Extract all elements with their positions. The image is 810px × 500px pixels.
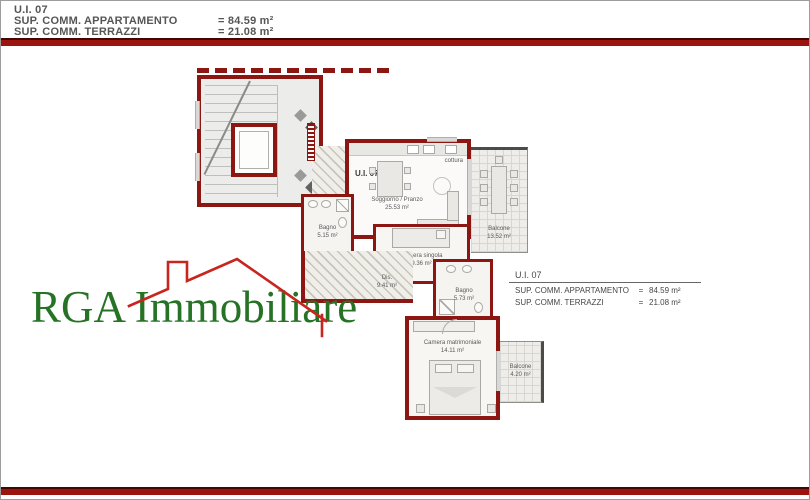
info-box: U.I. 07 SUP. COMM. APPARTAMENTO = 84.59 …: [509, 270, 701, 307]
elevator-car: [239, 131, 269, 169]
info-apartment-eq: =: [633, 286, 649, 295]
info-terraces-label: SUP. COMM. TERRAZZI: [515, 298, 633, 307]
chair: [510, 198, 518, 206]
nightstand: [416, 404, 425, 413]
window: [195, 153, 200, 181]
room-name: Balcone: [500, 364, 541, 372]
pillow: [457, 364, 474, 373]
room-name: Bagno: [304, 225, 351, 233]
radiator: [307, 123, 315, 161]
shower: [336, 199, 349, 212]
room-balcone-grande: Balcone 13.52 m²: [471, 147, 528, 253]
bidet: [321, 200, 331, 208]
roof-icon: [29, 249, 365, 345]
sink: [446, 265, 456, 273]
elevator: [231, 123, 277, 177]
room-area: 14.11 m²: [409, 348, 496, 356]
chair: [369, 183, 376, 190]
chair: [480, 170, 488, 178]
chair: [480, 184, 488, 192]
floorplan-sheet: U.I. 07 SUP. COMM. APPARTAMENTO = 84.59 …: [0, 0, 810, 500]
dining-table: [377, 161, 403, 197]
pillow: [436, 230, 446, 239]
info-box-unit: U.I. 07: [509, 270, 701, 283]
room-name: Balcone: [471, 226, 527, 234]
room-area: 9.41 m²: [363, 283, 411, 291]
room-area: 4.20 m²: [500, 372, 541, 380]
room-name: Camera matrimoniale: [409, 340, 496, 348]
nightstand: [487, 404, 496, 413]
patio-table: [491, 166, 507, 214]
sink: [308, 200, 318, 208]
direction-arrow-icon: [294, 109, 307, 122]
chair: [404, 167, 411, 174]
kitchen-sink: [407, 145, 419, 154]
info-apartment-value: 84.59 m²: [649, 286, 681, 295]
room-area: 13.52 m²: [471, 234, 527, 242]
info-terraces-value: 21.08 m²: [649, 298, 681, 307]
room-area: 25.53 m²: [349, 205, 445, 213]
agency-logo: RGA Immobiliare: [29, 249, 365, 345]
chair: [495, 156, 503, 164]
room-name: Bagno: [440, 288, 488, 296]
kitchen-appliance: [445, 145, 457, 154]
chair: [510, 184, 518, 192]
chair: [369, 167, 376, 174]
entrance-landing: [312, 146, 349, 200]
chair: [510, 170, 518, 178]
chair: [404, 183, 411, 190]
sofa: [447, 191, 459, 221]
blanket: [433, 387, 477, 398]
toilet: [474, 302, 483, 313]
dashed-wall: [197, 68, 395, 73]
window: [195, 101, 200, 129]
room-name: Soggiorno / Pranzo: [349, 197, 445, 205]
chair: [480, 198, 488, 206]
sink: [462, 265, 472, 273]
room-balcone-piccolo: Balcone 4.20 m²: [500, 341, 544, 403]
window: [427, 137, 457, 142]
direction-arrow-icon: [294, 169, 307, 182]
room-bagno-2: Bagno 5.73 m²: [433, 259, 493, 323]
pillow: [435, 364, 452, 373]
room-bagno-1: Bagno 5.15 m²: [301, 194, 354, 254]
room-area: 5.15 m²: [304, 233, 351, 241]
room-area: 5.73 m²: [440, 296, 488, 304]
info-apartment-label: SUP. COMM. APPARTAMENTO: [515, 286, 633, 295]
kitchen-hob: [423, 145, 435, 154]
info-terraces-eq: =: [633, 298, 649, 307]
double-bed: [429, 360, 481, 415]
kitchen-label: cottura: [445, 158, 463, 166]
room-stairwell: [197, 75, 323, 207]
room-name: Dis.: [363, 275, 411, 283]
